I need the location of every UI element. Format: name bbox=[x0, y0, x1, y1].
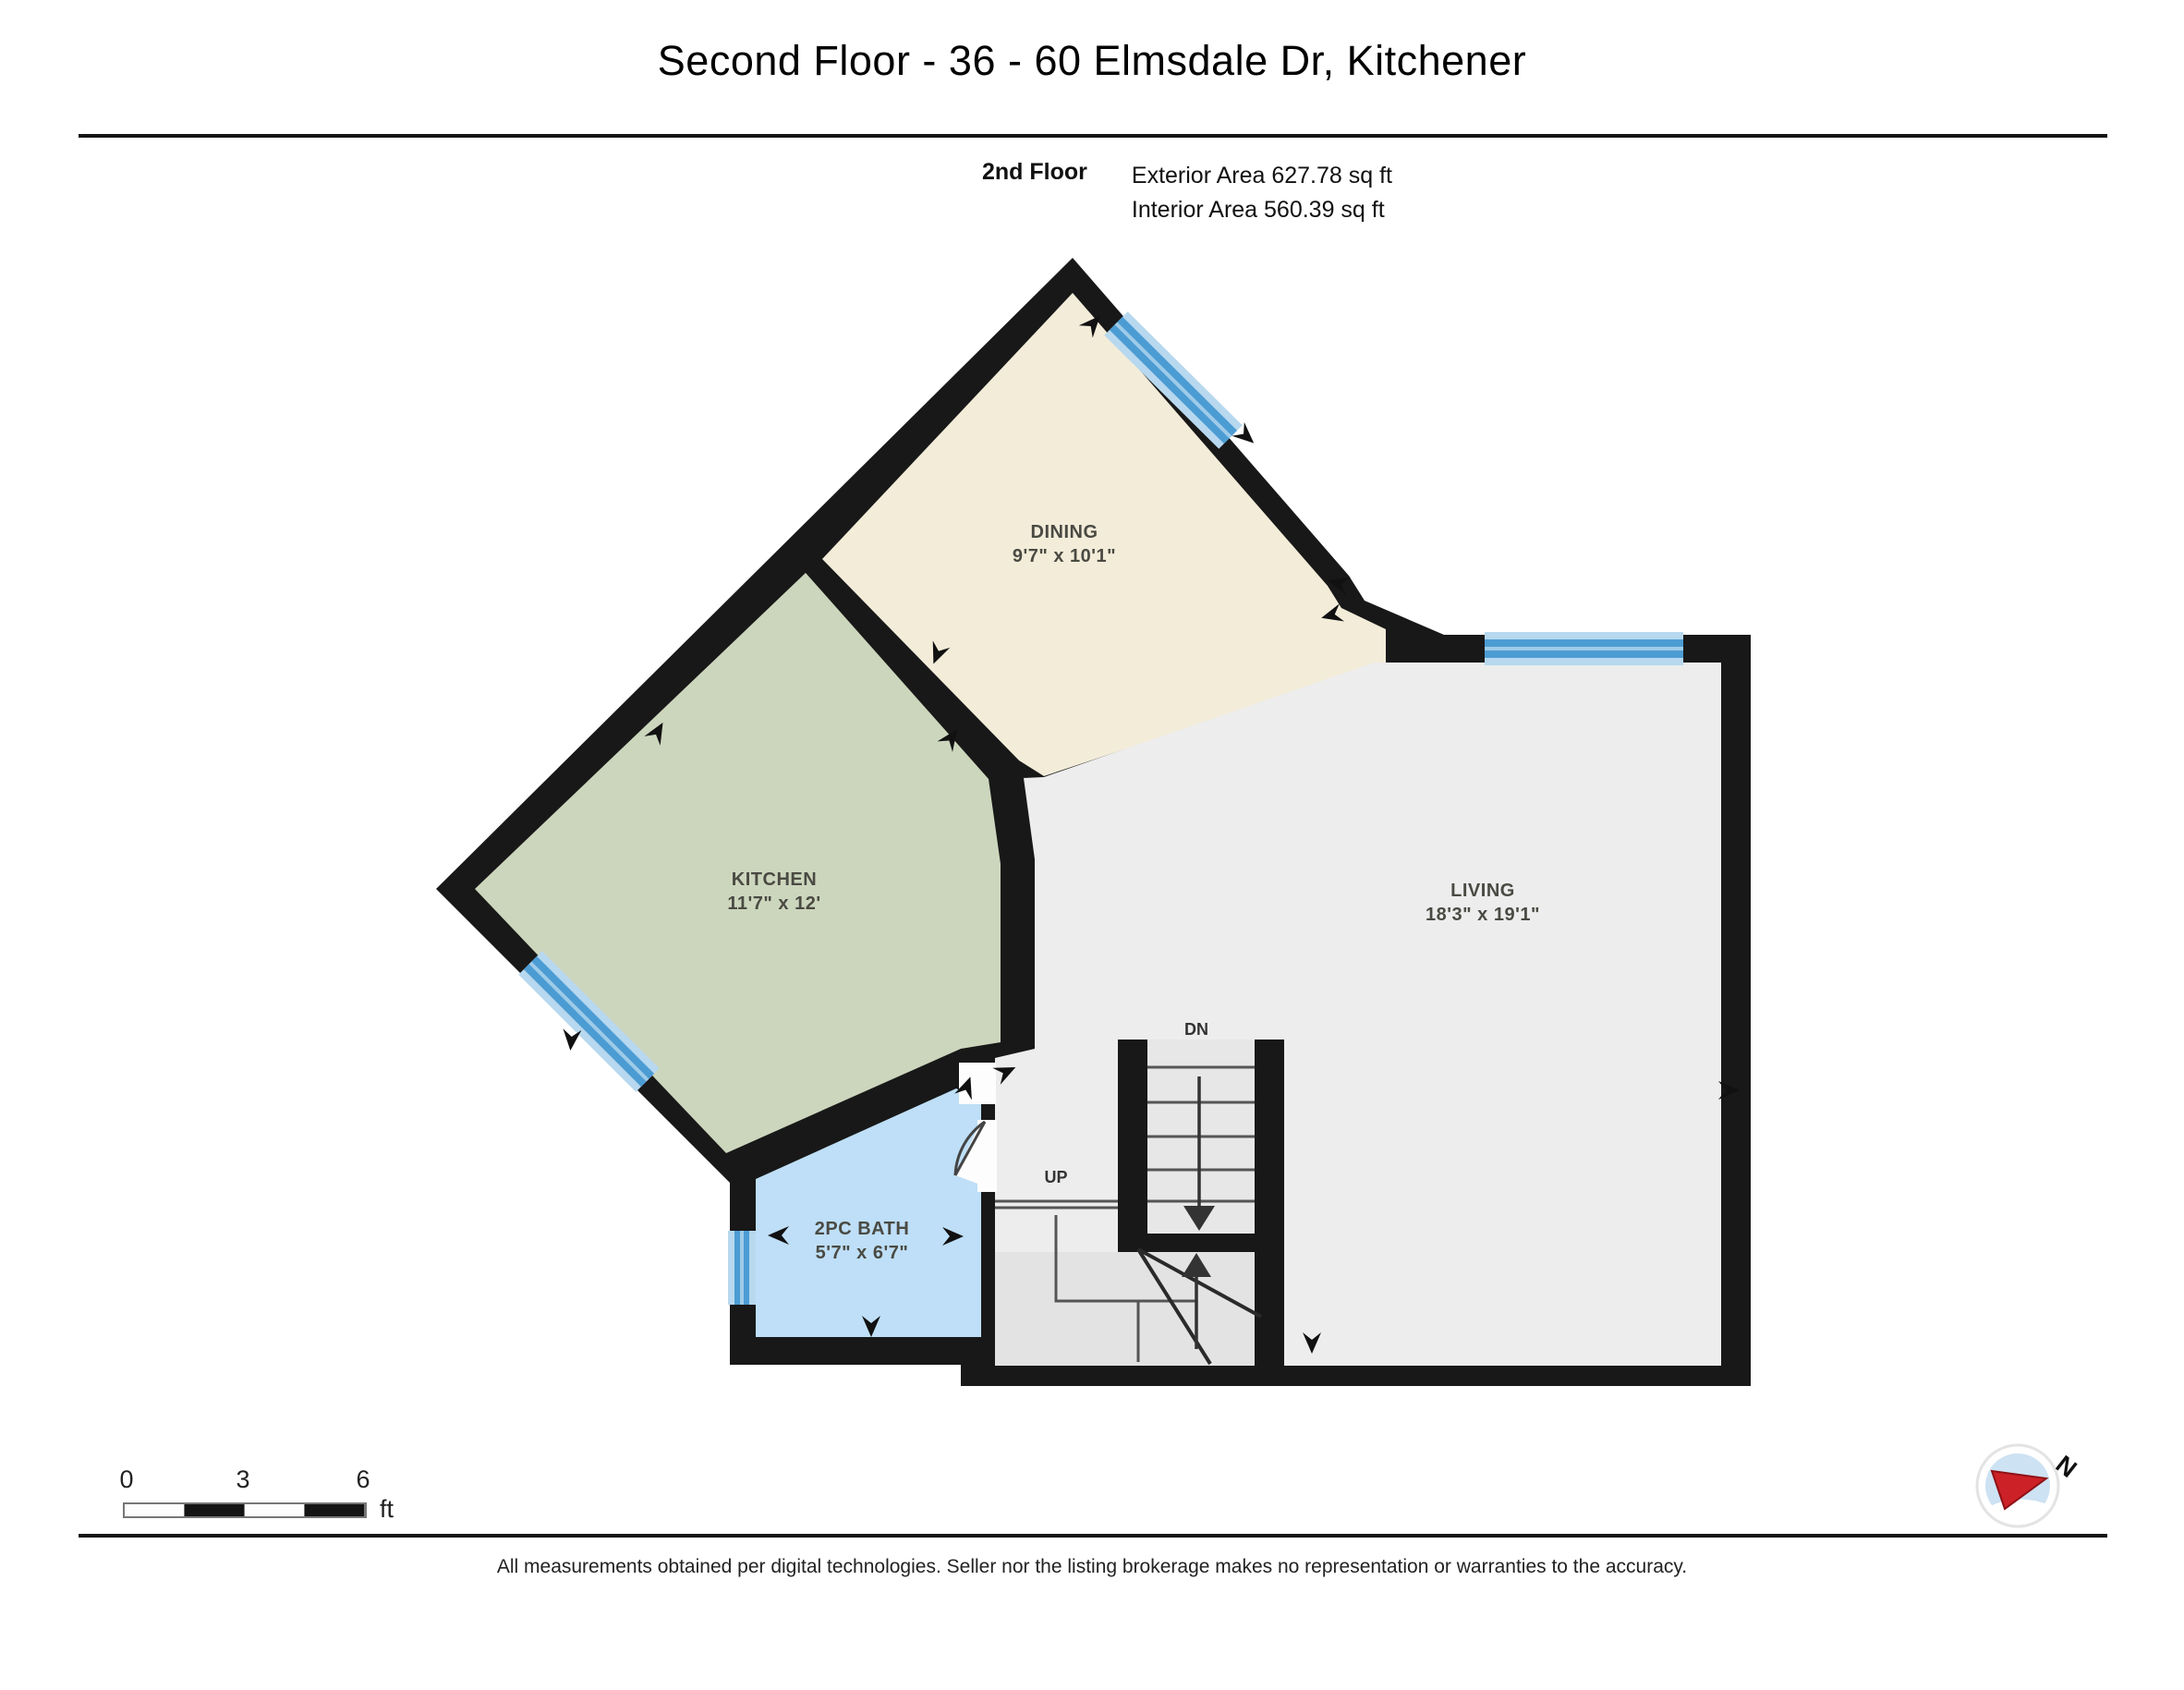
bath-label: 2PC BATH bbox=[815, 1219, 910, 1239]
floor-plan: DINING 9'7" x 10'1" KITCHEN 11'7" x 12' … bbox=[0, 0, 2184, 1685]
scale-tick-0: 0 bbox=[119, 1465, 133, 1494]
stairs-up-label: UP bbox=[1044, 1168, 1067, 1186]
dining-dims: 9'7" x 10'1" bbox=[1013, 546, 1116, 566]
scale-segment bbox=[125, 1504, 185, 1516]
scale-tick-3: 3 bbox=[236, 1465, 249, 1494]
disclaimer-text: All measurements obtained per digital te… bbox=[0, 1556, 2184, 1578]
scale-unit: ft bbox=[380, 1495, 394, 1524]
dining-label: DINING bbox=[1031, 522, 1098, 542]
scale-segment bbox=[245, 1504, 305, 1516]
stairs-dn-label: DN bbox=[1184, 1020, 1208, 1039]
bottom-divider bbox=[79, 1534, 2107, 1538]
kitchen-dims: 11'7" x 12' bbox=[727, 894, 820, 914]
scale-bar-segments bbox=[123, 1502, 367, 1518]
kitchen-label: KITCHEN bbox=[732, 869, 817, 890]
living-label: LIVING bbox=[1450, 881, 1515, 901]
living-dims: 18'3" x 19'1" bbox=[1426, 905, 1540, 925]
compass-icon: N bbox=[1977, 1445, 2082, 1526]
stair-landing-floor bbox=[995, 1252, 1255, 1366]
bath-dims: 5'7" x 6'7" bbox=[816, 1243, 909, 1263]
scale-bar: 0 3 6 ft bbox=[123, 1465, 557, 1539]
stairwell-left-wall bbox=[1118, 1040, 1147, 1252]
stairwell-cross-wall bbox=[1118, 1234, 1284, 1252]
scale-segment bbox=[305, 1504, 365, 1516]
scale-tick-6: 6 bbox=[356, 1465, 370, 1494]
scale-segment bbox=[185, 1504, 245, 1516]
